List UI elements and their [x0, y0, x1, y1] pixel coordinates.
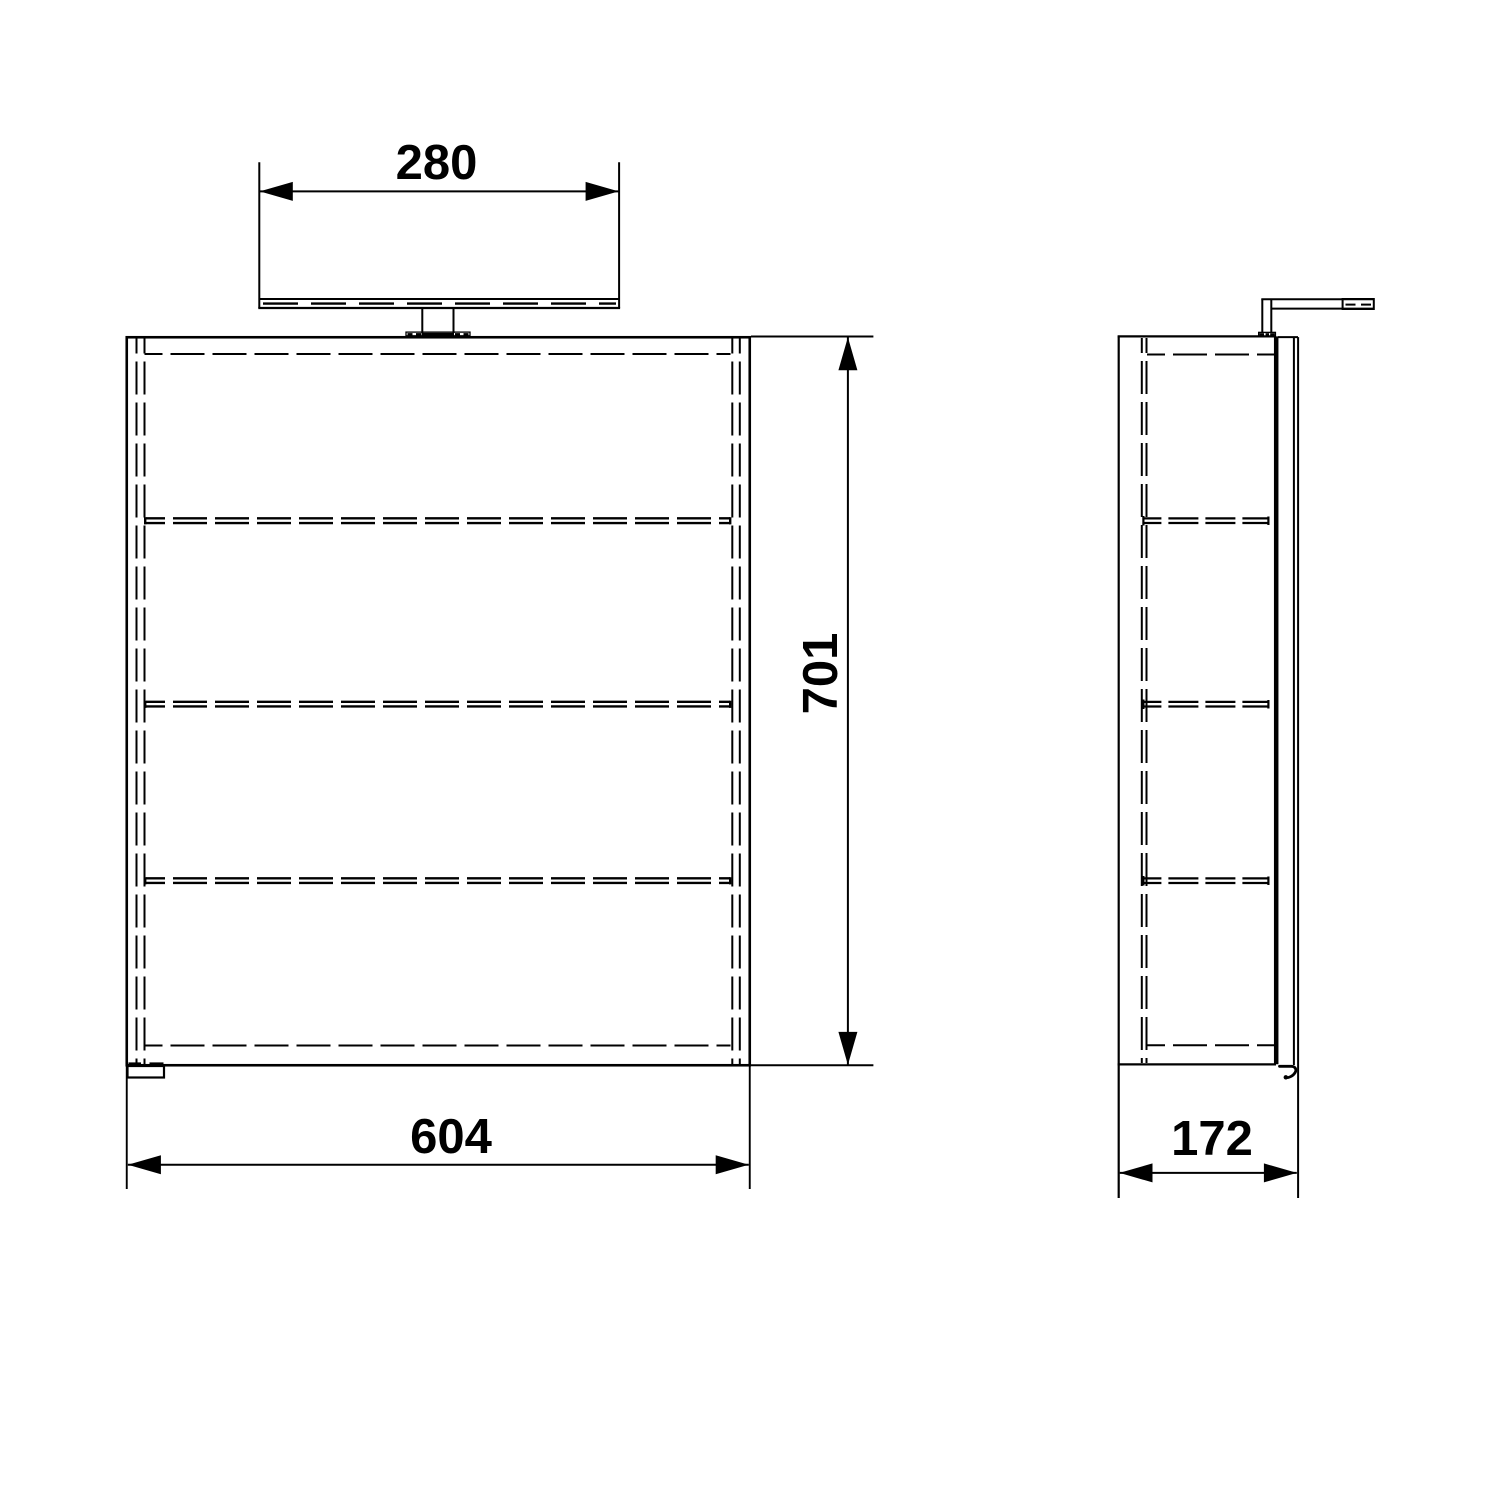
svg-text:604: 604	[410, 1110, 492, 1164]
svg-text:172: 172	[1171, 1112, 1253, 1166]
svg-text:280: 280	[396, 136, 478, 190]
svg-text:701: 701	[794, 633, 848, 715]
